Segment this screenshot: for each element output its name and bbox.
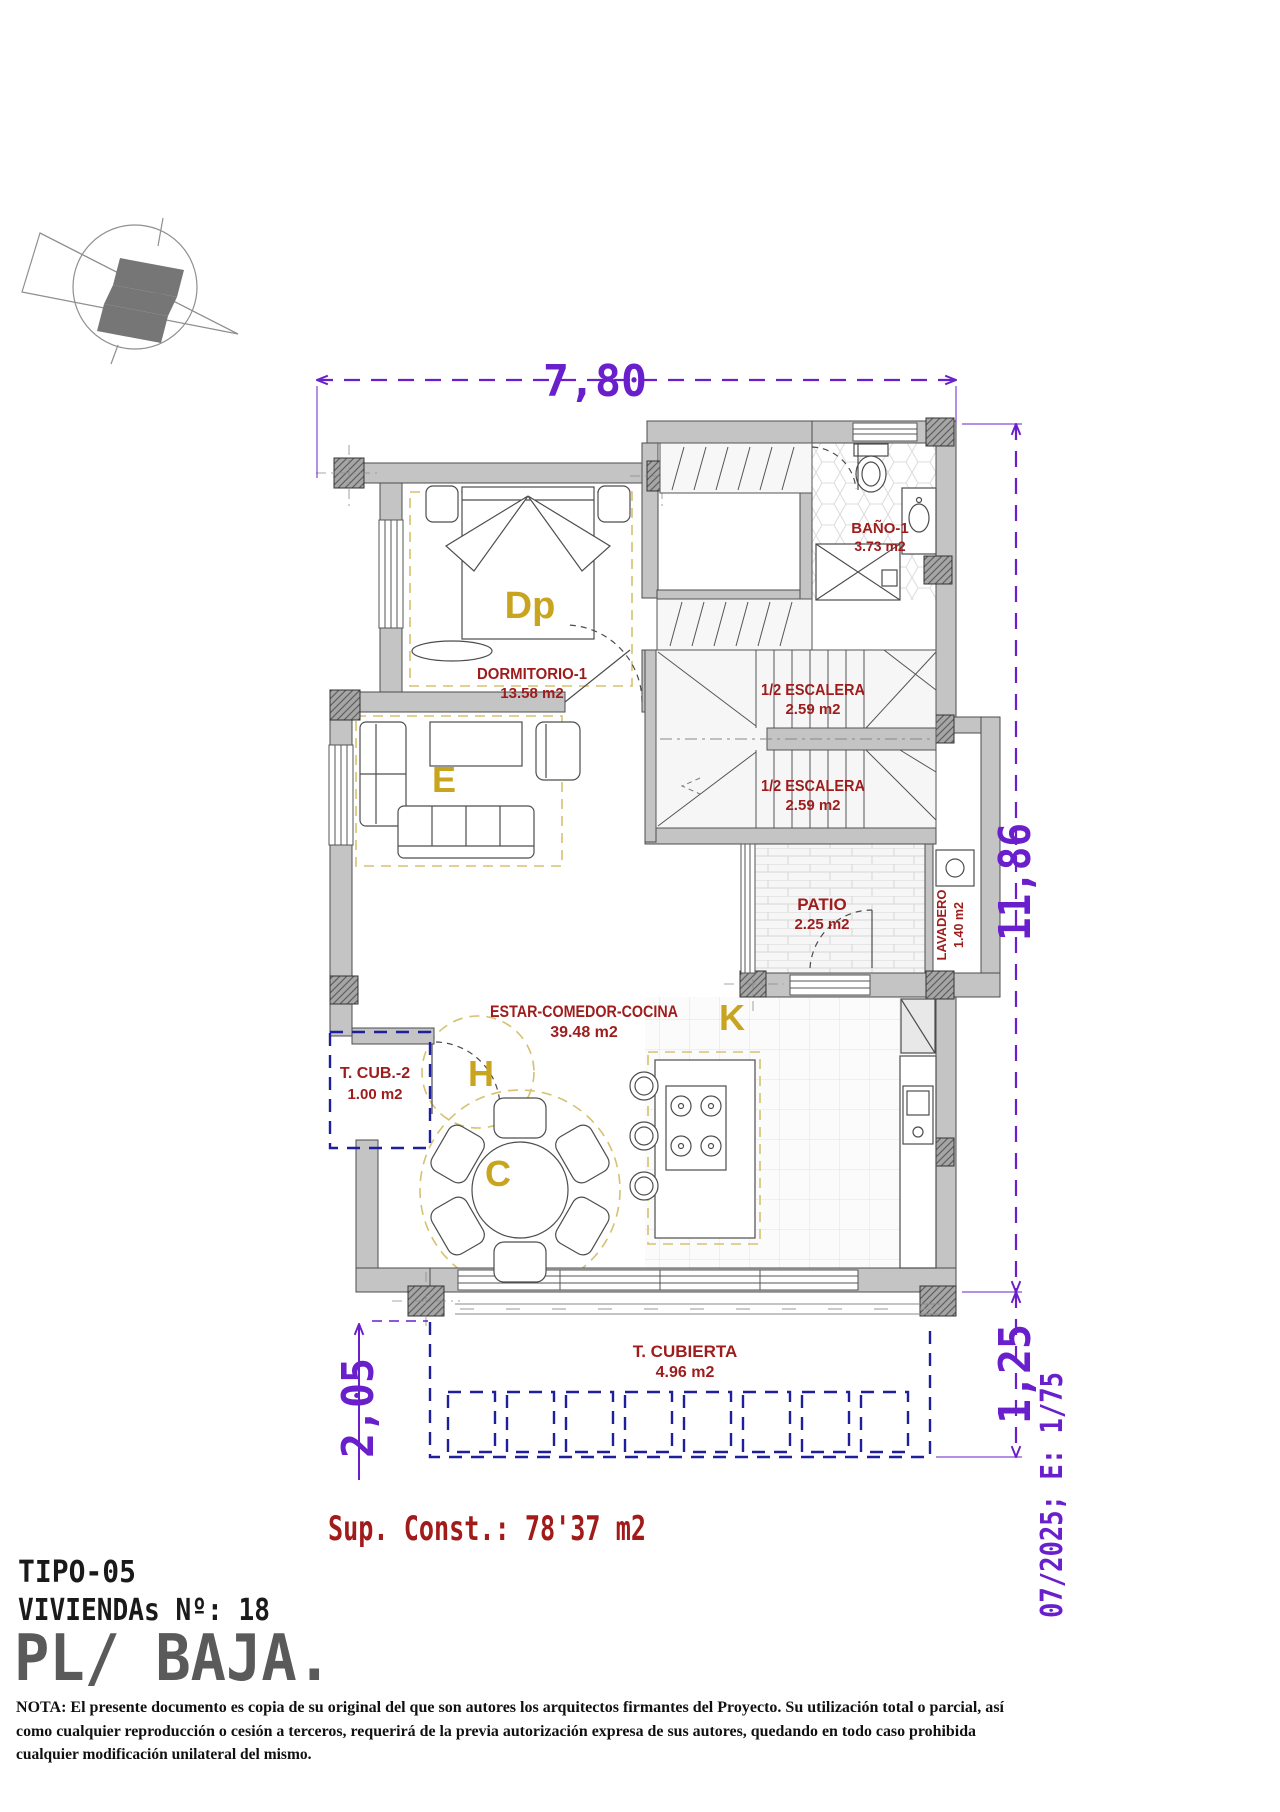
dim-top-label: 7,80	[543, 356, 647, 407]
floor-plan-svg: 7,80 11,86 2,05 1,25 DORMITORIO-1 13.58 …	[0, 0, 1280, 1812]
closet-top	[660, 443, 812, 493]
dim-bottom-right-label: 1,25	[990, 1324, 1041, 1424]
margin-date-scale: 07/2025; E: 1/75	[1035, 1372, 1070, 1618]
lavadero-area: 1.40 m2	[952, 902, 966, 948]
patio-glazing	[741, 844, 755, 973]
escalera-sup-label: 1/2 ESCALERA	[761, 682, 865, 699]
zone-letter-e: E	[432, 759, 456, 800]
north-arrow-icon	[22, 218, 238, 364]
sofa-bottom-icon	[398, 806, 534, 858]
nightstand-left-icon	[426, 486, 458, 522]
escalera-sup-area: 2.59 m2	[785, 701, 840, 718]
terrace-edge	[455, 1304, 940, 1314]
stools	[630, 1072, 658, 1200]
patio-window	[790, 975, 870, 995]
tcub2-label: T. CUB.-2	[340, 1065, 410, 1082]
bano-area: 3.73 m2	[854, 538, 906, 554]
nota-line-2: como cualquier reproducción o cesión a t…	[16, 1723, 976, 1740]
dining-furniture	[427, 1098, 612, 1282]
bano-label: BAÑO-1	[851, 519, 909, 537]
closet-mid	[657, 599, 812, 650]
zone-letter-dp: Dp	[505, 585, 556, 627]
kitchen-sink-icon	[903, 1086, 933, 1144]
cooktop-icon	[666, 1086, 726, 1170]
sup-const-label: Sup. Const.: 78'37 m2	[328, 1509, 646, 1549]
dim-right-label: 11,86	[990, 823, 1041, 941]
escalera-inf-label: 1/2 ESCALERA	[761, 778, 865, 795]
toilet-icon	[854, 444, 888, 492]
tcubierta-area: 4.96 m2	[656, 1364, 715, 1381]
washer-icon	[936, 850, 974, 886]
escalera-inf-area: 2.59 m2	[785, 797, 840, 814]
porch-posts	[448, 1392, 908, 1452]
title-tipo: TIPO-05	[18, 1555, 136, 1590]
armchair-icon	[536, 722, 580, 780]
estar-label: ESTAR-COMEDOR-COCINA	[490, 1002, 678, 1021]
zone-letter-h: H	[468, 1053, 494, 1094]
patio-label: PATIO	[797, 895, 846, 914]
living-furniture	[360, 722, 580, 858]
bathroom-window	[853, 423, 917, 441]
dim-bottom-left-label: 2,05	[333, 1358, 384, 1458]
living-window-left	[329, 745, 353, 845]
tcub2-area: 1.00 m2	[347, 1086, 402, 1103]
bedroom-rug-icon	[412, 641, 492, 661]
tcubierta-label: T. CUBIERTA	[633, 1342, 738, 1361]
bedroom-window	[379, 520, 403, 628]
nota-line-1: NOTA: El presente documento es copia de …	[16, 1699, 1005, 1716]
estar-area: 39.48 m2	[550, 1024, 618, 1041]
fridge-icon	[901, 999, 935, 1053]
floor-plan-page: 7,80 11,86 2,05 1,25 DORMITORIO-1 13.58 …	[0, 0, 1280, 1812]
zone-letter-c: C	[485, 1153, 511, 1194]
nota-line-3: cualquier modificación unilateral del mi…	[16, 1746, 312, 1763]
nightstand-right-icon	[598, 486, 630, 522]
dormitorio-area: 13.58 m2	[500, 685, 563, 702]
lavadero-label: LAVADERO	[934, 889, 949, 960]
patio-area: 2.25 m2	[794, 916, 849, 933]
dormitorio-label: DORMITORIO-1	[477, 666, 587, 683]
zone-letter-k: K	[719, 997, 745, 1038]
title-planta: PL/ BAJA.	[14, 1622, 332, 1696]
